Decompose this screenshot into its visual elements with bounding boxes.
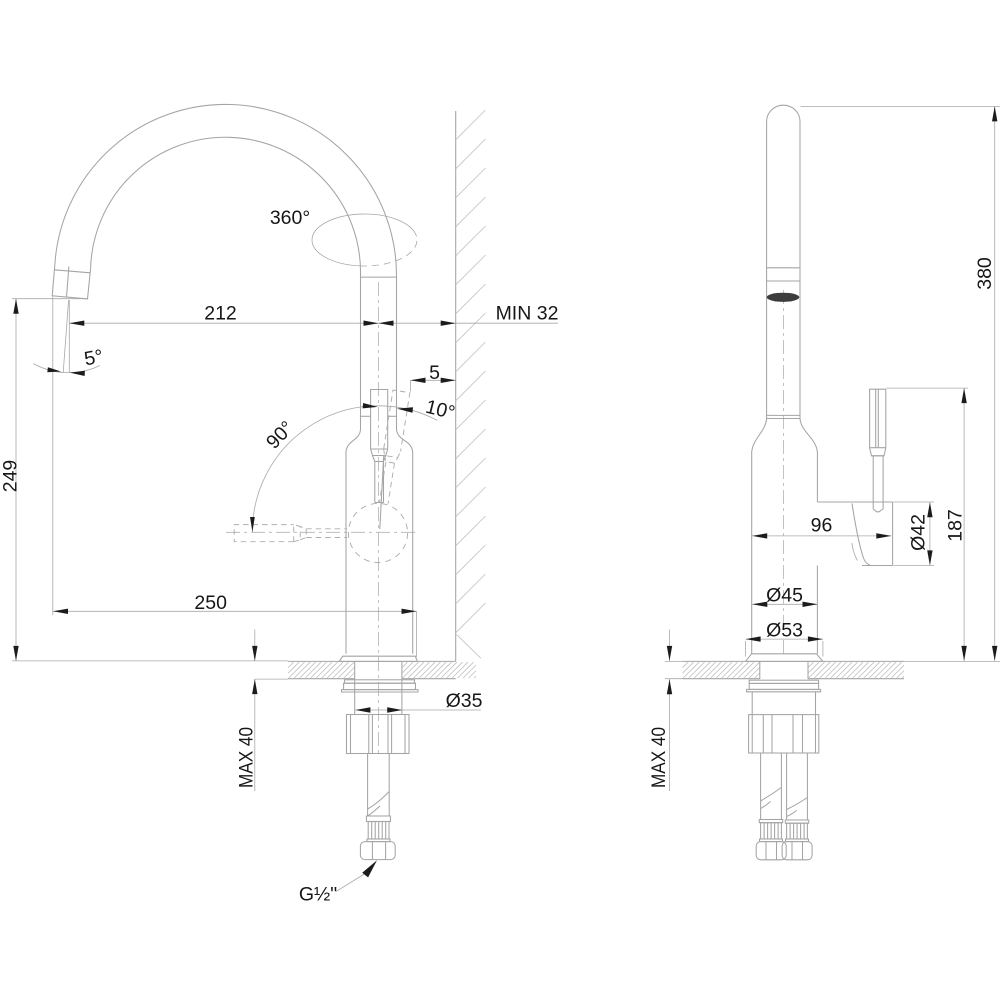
svg-text:Ø42: Ø42 xyxy=(908,514,930,551)
svg-text:5°: 5° xyxy=(83,346,105,371)
svg-text:249: 249 xyxy=(0,460,22,493)
svg-text:187: 187 xyxy=(945,509,967,542)
svg-text:380: 380 xyxy=(974,257,996,290)
svg-text:Ø53: Ø53 xyxy=(766,619,803,641)
svg-text:250: 250 xyxy=(194,592,227,614)
svg-text:96: 96 xyxy=(811,515,833,537)
svg-text:360°: 360° xyxy=(270,207,310,229)
svg-text:Ø45: Ø45 xyxy=(766,585,803,607)
svg-text:MAX 40: MAX 40 xyxy=(236,727,258,788)
svg-text:5: 5 xyxy=(429,362,440,384)
svg-text:212: 212 xyxy=(204,303,237,325)
svg-text:MIN 32: MIN 32 xyxy=(496,303,559,325)
svg-text:Ø35: Ø35 xyxy=(446,690,483,712)
svg-text:G½": G½" xyxy=(299,884,337,906)
svg-text:MAX 40: MAX 40 xyxy=(648,727,670,788)
